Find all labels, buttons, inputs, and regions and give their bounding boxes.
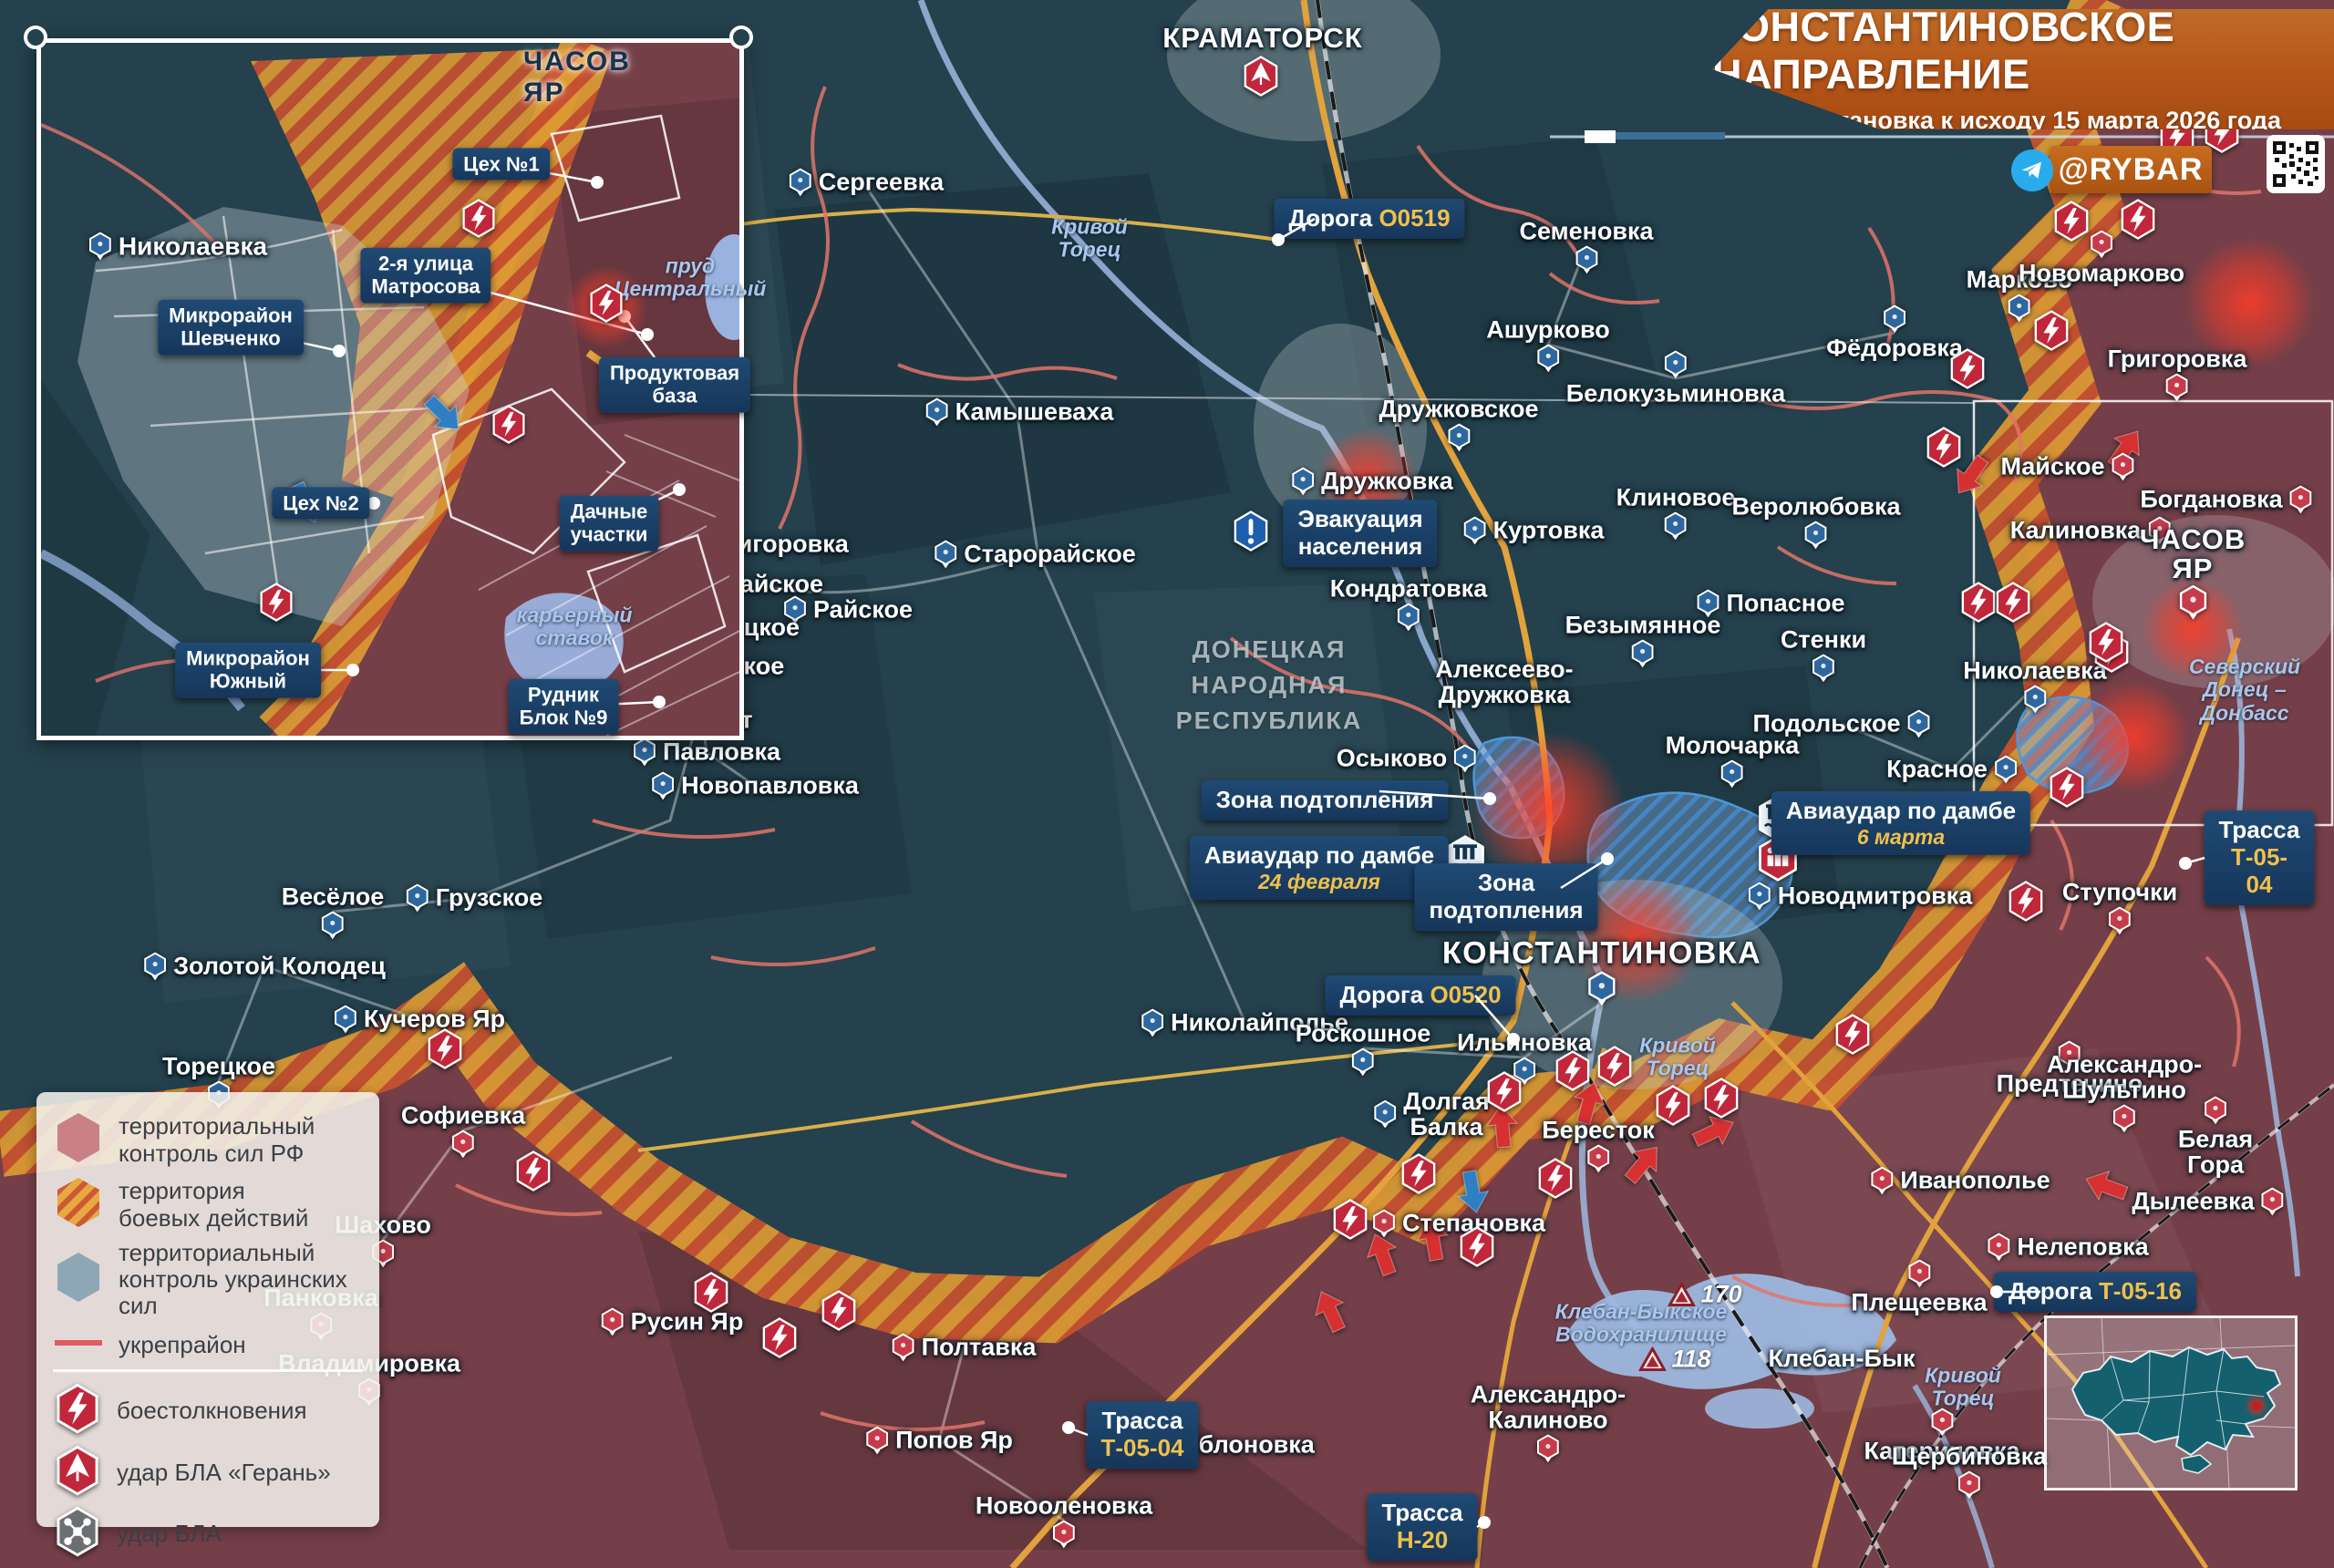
legend-label: удар БЛА [117, 1521, 222, 1547]
settlement-label: Николаевка [88, 232, 267, 261]
legend-row-fortified-area: укрепрайон [53, 1332, 363, 1358]
clash-icon [490, 405, 528, 449]
inset-map-chasov-yar: ЧАСОВ ЯР НиколаевкаЦех №12-я улицаМатрос… [36, 38, 744, 740]
clashes-icon [53, 1383, 102, 1439]
battle-territory-icon [53, 1175, 104, 1234]
geran-drone-strike-icon [53, 1445, 102, 1501]
legend-label: территориальный контроль украинских сил [119, 1240, 363, 1319]
inset-area-label: Дачныеучастки [560, 496, 659, 552]
legend: территориальный контроль сил РФ территор… [36, 1092, 379, 1527]
legend-row-ua-control: территориальный контроль украинских сил [53, 1240, 363, 1319]
inset-corner-marker [24, 26, 47, 49]
legend-row-geran-strike: удар БЛА «Герань» [53, 1445, 363, 1501]
uav-strike-icon [53, 1506, 102, 1562]
legend-label: территория боевых действий [119, 1178, 308, 1231]
legend-label: удар БЛА «Герань» [117, 1460, 331, 1486]
inset-corner-marker [729, 26, 753, 49]
situation-map: ЧАСОВ ЯР НиколаевкаЦех №12-я улицаМатрос… [0, 0, 2334, 1568]
inset-area-label: Цех №1 [452, 148, 550, 180]
ua-settlement-marker [88, 232, 112, 261]
qr-code [2267, 135, 2325, 193]
legend-label: укрепрайон [119, 1332, 246, 1358]
inset-area-label: МикрорайонШевченко [158, 300, 304, 356]
water-name-label: карьерный ставок [517, 604, 633, 651]
inset-area-label: МикрорайонЮжный [175, 643, 321, 698]
inset-city-label: ЧАСОВ ЯР [523, 46, 667, 108]
telegram-icon [2011, 150, 2053, 191]
legend-row-uav-strike: удар БЛА [53, 1506, 363, 1562]
rf-territory-icon [53, 1110, 104, 1170]
telegram-handle: @RYBAR [2059, 152, 2204, 188]
inset-area-label: Продуктоваябаза [599, 357, 750, 413]
legend-label: территориальный контроль сил РФ [119, 1113, 315, 1166]
page-title: КОНСТАНТИНОВСКОЕ НАПРАВЛЕНИЕ [1712, 4, 2281, 98]
legend-row-battle-zone: территория боевых действий [53, 1175, 363, 1234]
fortification-line-icon [53, 1336, 104, 1354]
rybar-badge: @RYBAR [2050, 146, 2212, 193]
clash-icon [460, 199, 498, 243]
legend-row-rf-control: территориальный контроль сил РФ [53, 1110, 363, 1170]
clash-icon [257, 583, 295, 627]
legend-row-clashes: боестолкновения [53, 1383, 363, 1439]
inset-area-label: Цех №2 [272, 487, 369, 519]
clash-icon [587, 284, 625, 328]
ukraine-minimap [2044, 1315, 2298, 1491]
legend-divider [53, 1369, 363, 1372]
water-name-label: пруд Центральный [614, 255, 767, 302]
settlement-name: Николаевка [119, 232, 267, 259]
inset-area-label: 2-я улицаМатросова [360, 248, 491, 304]
legend-label: боестолкновения [117, 1398, 307, 1424]
ua-territory-icon [53, 1250, 104, 1309]
inset-area-label: РудникБлок №9 [509, 679, 619, 735]
